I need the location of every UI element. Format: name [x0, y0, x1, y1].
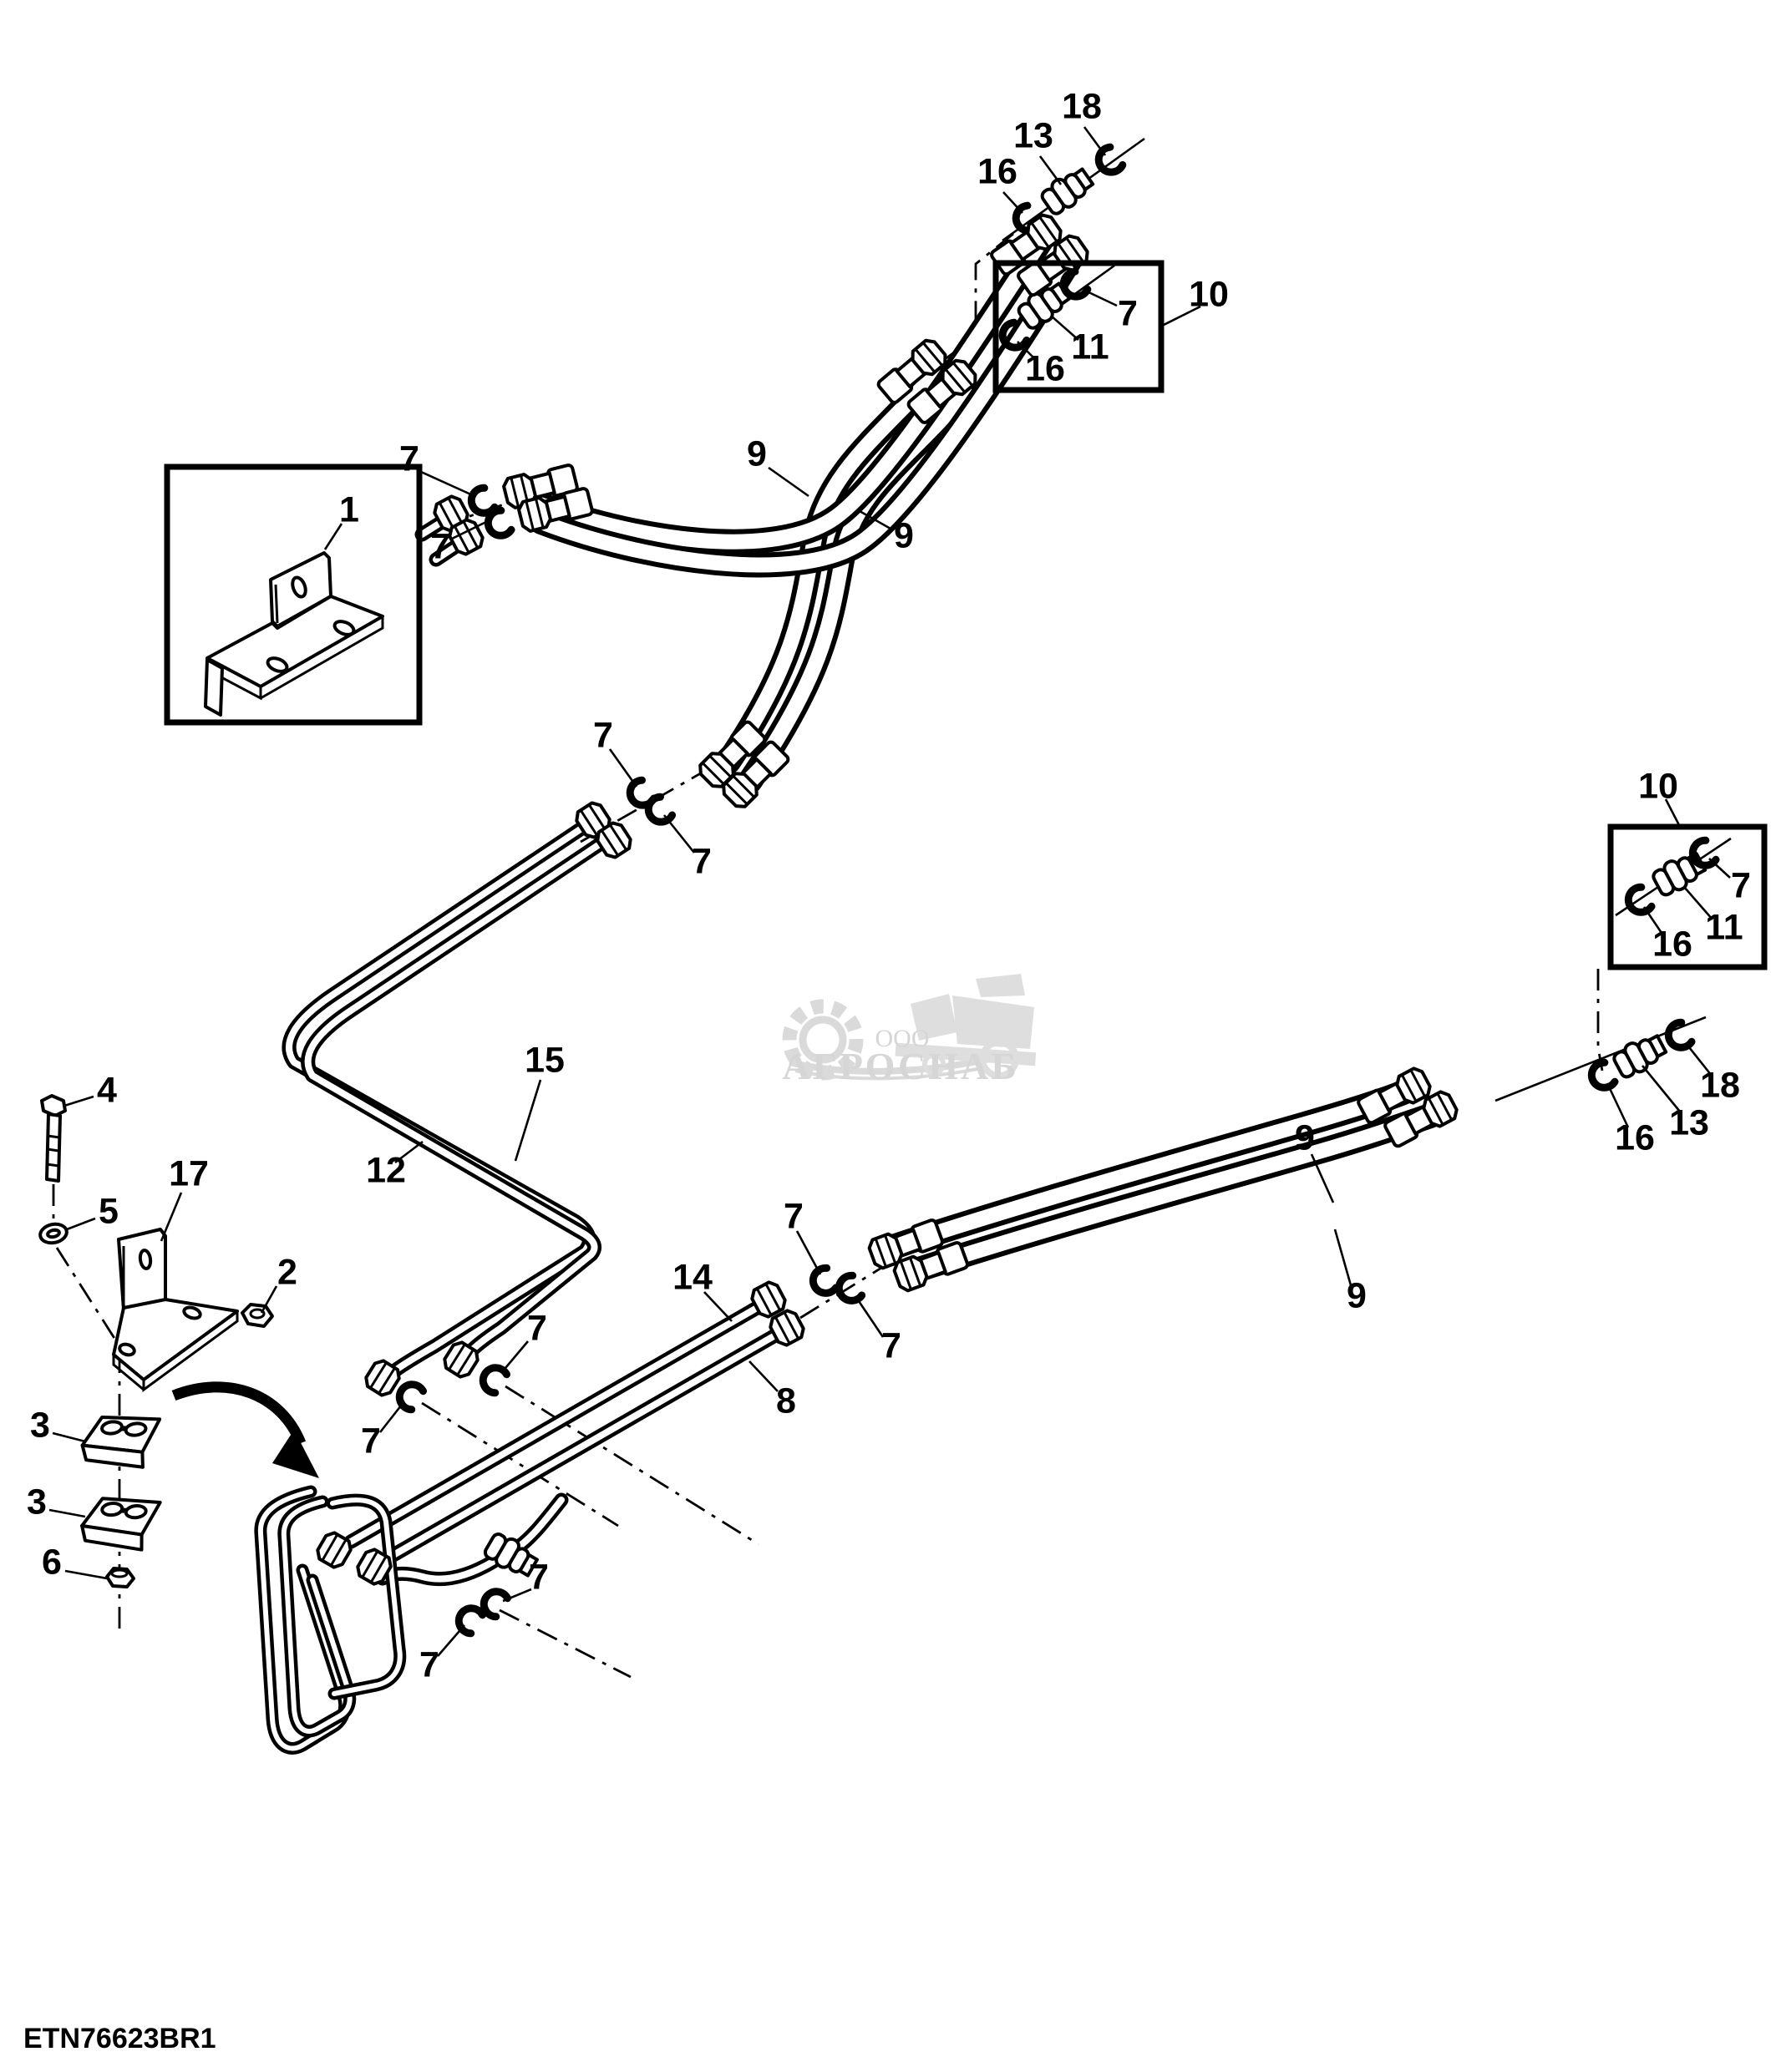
- callout-7-13: 7: [692, 841, 712, 881]
- callout-7-29: 7: [784, 1196, 804, 1236]
- callout-7-25: 7: [529, 1557, 549, 1597]
- callout-7-34: 7: [1731, 865, 1751, 905]
- drawing-number: ETN76623BR1: [23, 2023, 216, 2054]
- callout-4-16: 4: [97, 1070, 117, 1110]
- callout-8-28: 8: [776, 1380, 796, 1421]
- callout-2-19: 2: [277, 1252, 297, 1292]
- parts-diagram: ООО АГРОСНАБ: [0, 0, 1776, 2072]
- leader-line-7: [797, 1231, 820, 1274]
- callout-3-20: 3: [30, 1405, 50, 1445]
- callout-5-17: 5: [99, 1191, 119, 1231]
- leader-line-7: [421, 472, 474, 496]
- bracket-17: [114, 1229, 237, 1390]
- tube-clamp-upper: [79, 1410, 165, 1476]
- watermark-company-name: АГРОСНАБ: [782, 1045, 1018, 1087]
- leader-line-13: [1040, 156, 1061, 185]
- washer-7: [479, 1363, 508, 1394]
- callout-17-18: 17: [169, 1153, 209, 1193]
- callout-18-39: 18: [1700, 1065, 1740, 1105]
- callout-10-33: 10: [1638, 766, 1678, 806]
- leader-line-5: [67, 1218, 95, 1229]
- leader-line-7: [1709, 859, 1730, 878]
- callout-3-21: 3: [27, 1482, 47, 1522]
- callout-9-7: 9: [747, 433, 767, 474]
- leader-line-6: [65, 1571, 107, 1578]
- leader-line-7: [380, 1401, 404, 1432]
- callout-16-2: 16: [977, 151, 1017, 191]
- callout-16-37: 16: [1615, 1117, 1655, 1158]
- callout-7-30: 7: [881, 1325, 901, 1365]
- leader-line-7: [664, 815, 694, 853]
- leader-line-3: [49, 1510, 85, 1517]
- callout-11-35: 11: [1705, 907, 1743, 947]
- install-arrow-icon: [174, 1387, 319, 1478]
- callout-7-26: 7: [419, 1644, 439, 1684]
- callout-9-8: 9: [894, 515, 914, 555]
- callout-1-9: 1: [339, 489, 359, 529]
- hex-nut-2: [242, 1304, 272, 1326]
- washer-7: [454, 1603, 484, 1634]
- bracket-1: [206, 553, 383, 715]
- callout-7-24: 7: [361, 1421, 381, 1461]
- hydraulic-hoses: [526, 240, 1430, 1269]
- leader-line-17: [161, 1193, 181, 1241]
- callout-13-1: 13: [1013, 115, 1053, 155]
- leader-lines: [49, 127, 1730, 1656]
- parts-diagram-page: ООО АГРОСНАБ: [0, 0, 1776, 2072]
- leader-line-15: [515, 1080, 540, 1161]
- leader-line-16: [1003, 192, 1022, 213]
- leader-line-7: [610, 749, 637, 787]
- leader-line-7: [1083, 290, 1117, 306]
- callout-7-12: 7: [593, 715, 613, 755]
- leader-line-9: [769, 468, 809, 496]
- callout-7-3: 7: [1118, 293, 1138, 333]
- callout-18-0: 18: [1062, 86, 1102, 126]
- bolt: [42, 1096, 65, 1181]
- callout-16-36: 16: [1652, 924, 1692, 964]
- callout-15-14: 15: [525, 1040, 565, 1080]
- callout-9-32: 9: [1347, 1275, 1367, 1315]
- callout-7-10: 7: [399, 438, 419, 479]
- watermark-logo: ООО АГРОСНАБ: [782, 974, 1036, 1087]
- callout-13-38: 13: [1669, 1102, 1709, 1142]
- callout-12-15: 12: [366, 1150, 406, 1190]
- callout-11-5: 11: [1071, 327, 1109, 367]
- callout-10-4: 10: [1189, 274, 1229, 314]
- washer-16-right: [1587, 1061, 1616, 1092]
- leader-line-7: [501, 1341, 528, 1373]
- callout-7-23: 7: [527, 1308, 547, 1348]
- callout-14-27: 14: [672, 1257, 713, 1297]
- connector-11-box-right: [1650, 849, 1707, 898]
- washer-7: [809, 1267, 836, 1298]
- callout-9-31: 9: [1295, 1117, 1315, 1158]
- hex-nut-6: [107, 1568, 134, 1587]
- leader-line-8: [749, 1361, 778, 1391]
- connector-13-right: [1611, 1031, 1668, 1080]
- leader-line-3: [53, 1433, 85, 1441]
- leader-line-7: [855, 1296, 883, 1337]
- leader-line-7: [438, 1625, 464, 1656]
- callout-7-11: 7: [430, 526, 450, 566]
- flat-washer: [38, 1222, 69, 1245]
- tube-clamp-lower: [79, 1492, 165, 1556]
- callout-16-6: 16: [1025, 348, 1065, 388]
- washer-7: [484, 509, 512, 540]
- leader-line-4: [64, 1097, 94, 1106]
- leader-line-18: [1084, 127, 1105, 155]
- callout-6-22: 6: [42, 1542, 62, 1582]
